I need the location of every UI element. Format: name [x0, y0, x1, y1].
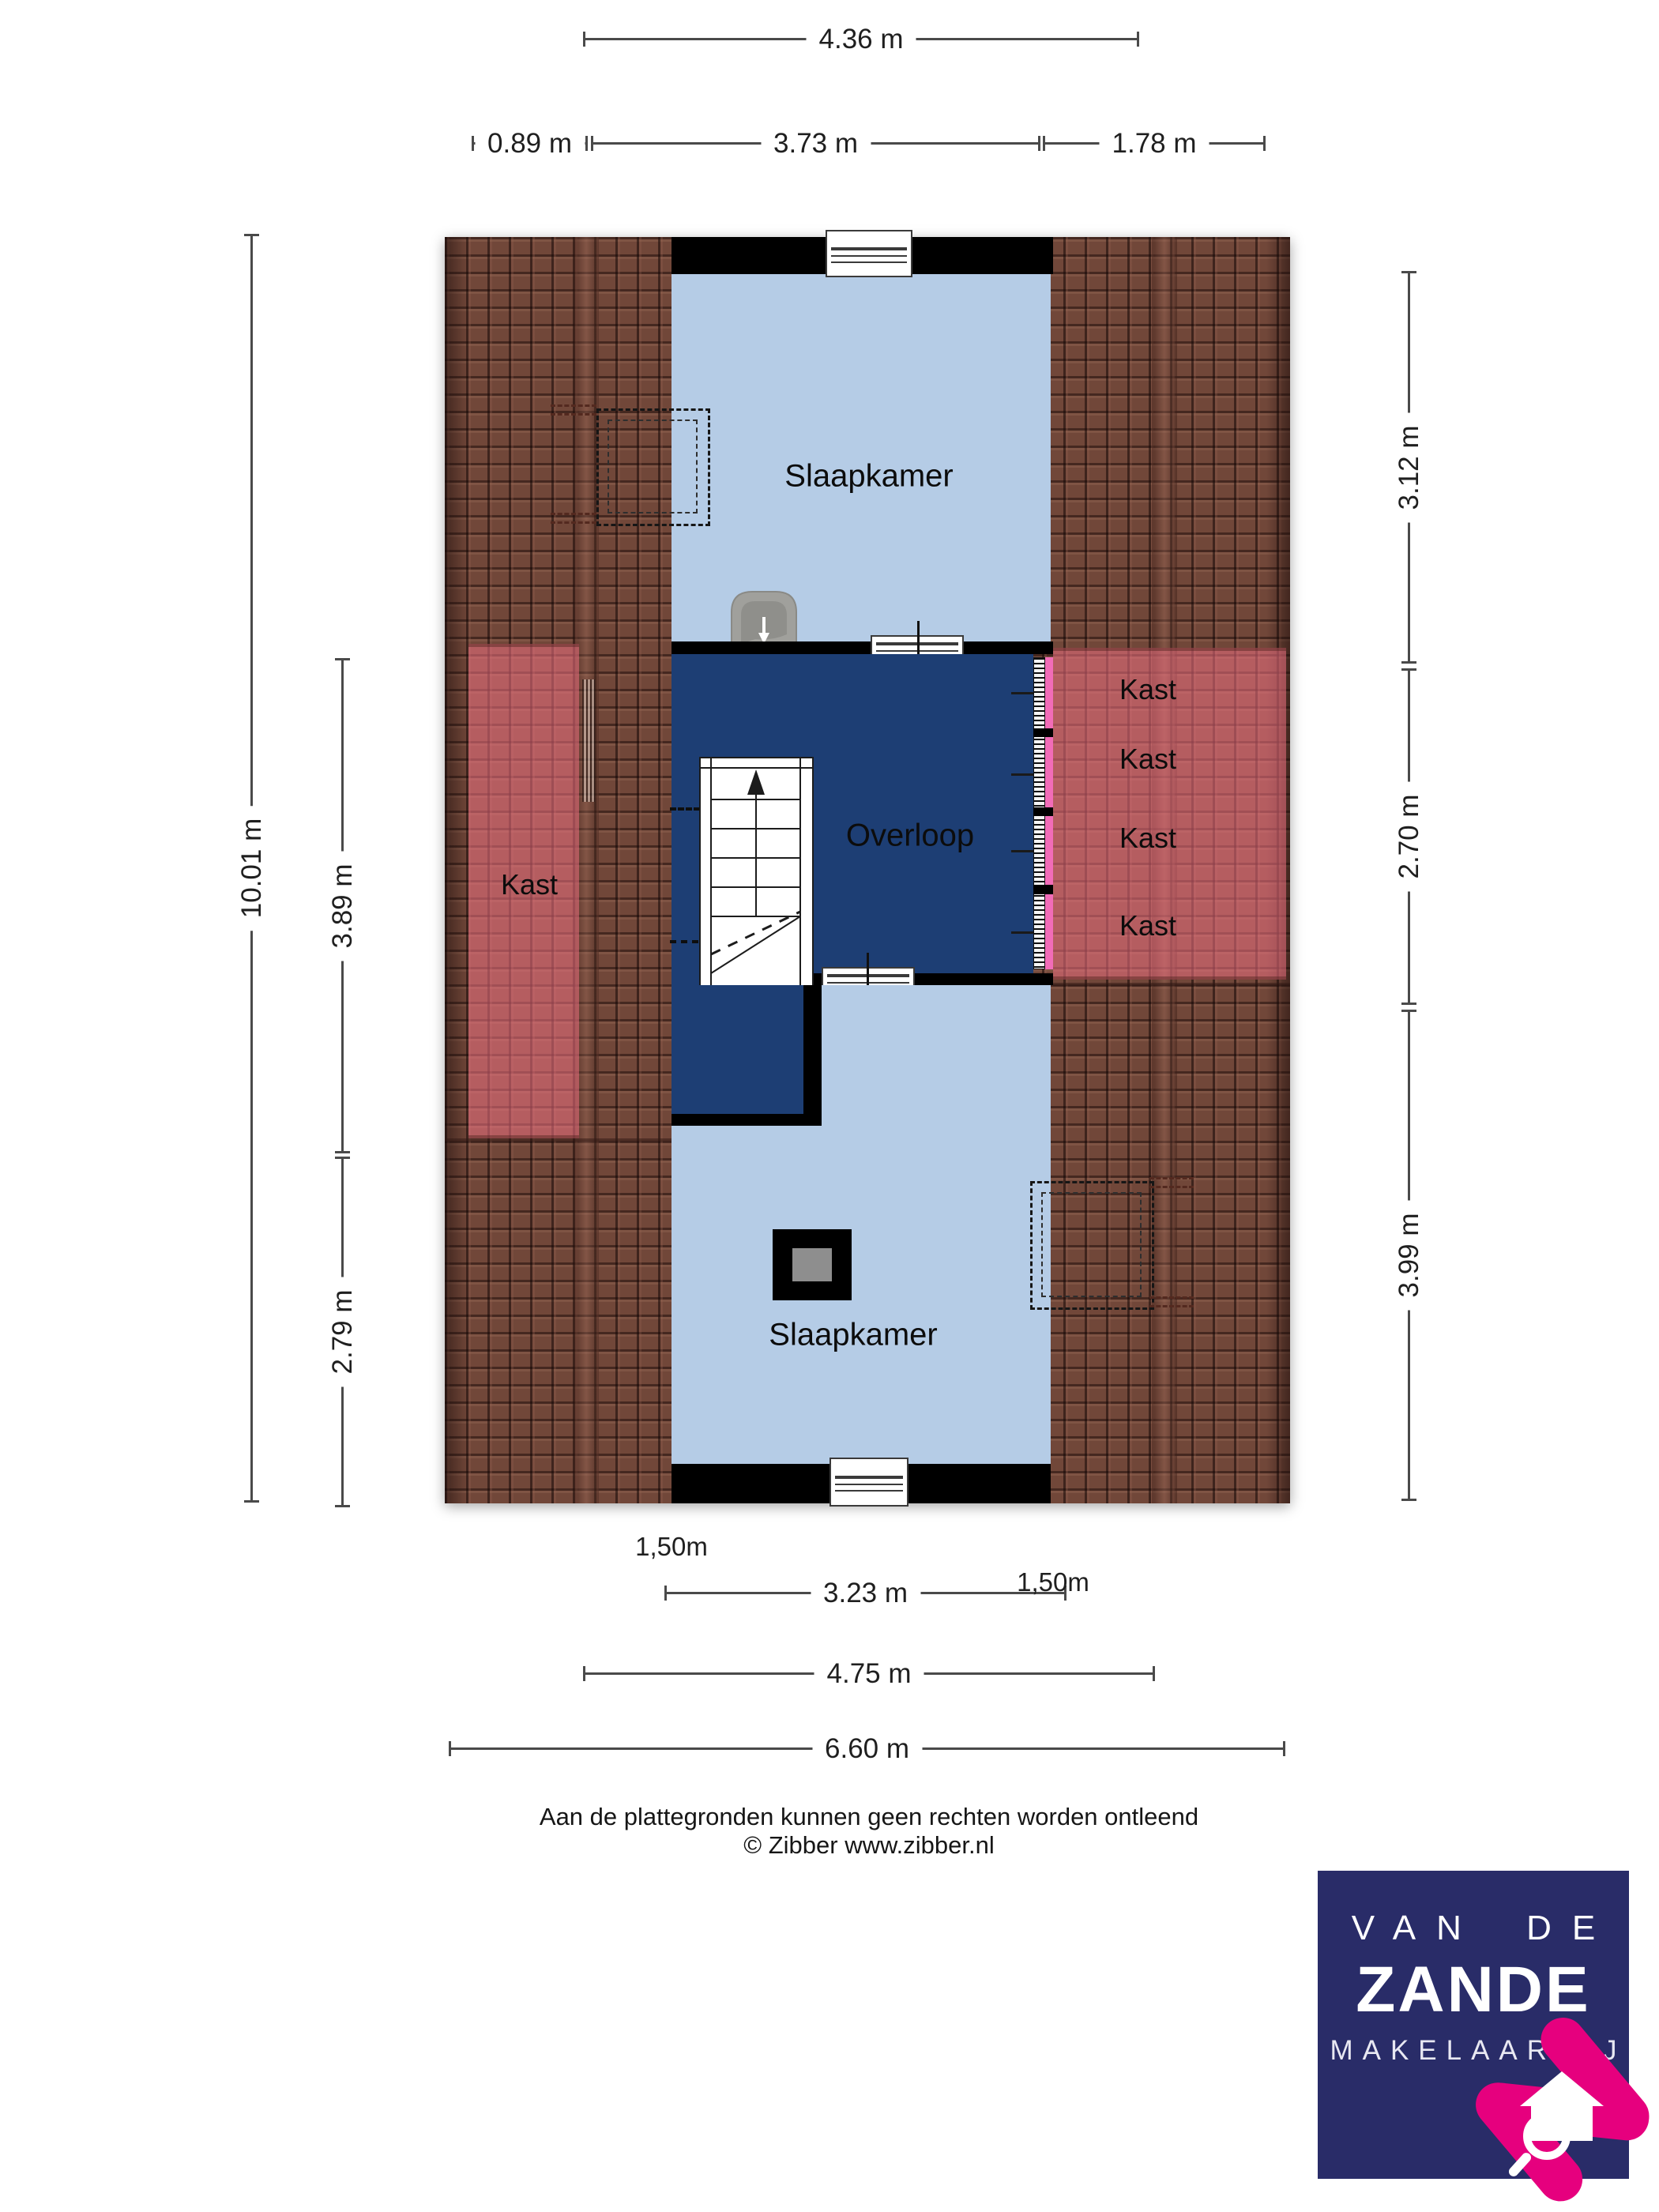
- dim-label: 3.73 m: [761, 128, 871, 160]
- room-label-landing: Overloop: [846, 818, 974, 854]
- closet-stub-3: [1033, 885, 1053, 894]
- room-label-closet-right-1: Kast: [1119, 673, 1176, 706]
- dim-top-width: 4.36 m: [585, 38, 1138, 40]
- room-label-bedroom-top: Slaapkamer: [784, 459, 953, 495]
- closet-door-tick-1: [1011, 692, 1033, 694]
- roof-window-ext-bottom: [551, 513, 596, 524]
- closet-door-tick-3: [1011, 850, 1033, 852]
- window-glass: [835, 1476, 903, 1492]
- wall-bedroomtop-landing: [671, 641, 1053, 654]
- logo-line-van-de: VAN DE: [1331, 1909, 1616, 1948]
- copyright-text: © Zibber www.zibber.nl: [743, 1831, 994, 1860]
- dim-left-mid: 3.89 m: [341, 660, 344, 1152]
- chimney-flue: [792, 1248, 832, 1281]
- bedroom-top-wall-right: [912, 237, 1053, 274]
- roof-window-ext-bottom: [1149, 1296, 1194, 1307]
- dim-label: 2.79 m: [327, 1277, 359, 1387]
- room-label-closet-right-4: Kast: [1119, 909, 1176, 942]
- bedroom-top-wall-left: [671, 237, 826, 274]
- sink-icon: [725, 589, 803, 644]
- window-glass: [831, 247, 907, 263]
- stairs-icon: [699, 757, 814, 1021]
- dim-label: 4.75 m: [814, 1658, 924, 1690]
- window-top: [826, 230, 912, 277]
- dim-label: 6.60 m: [812, 1733, 922, 1765]
- headroom-label-right: 1,50m: [1017, 1567, 1089, 1597]
- landing-alcove-over: [671, 985, 803, 1114]
- dim-right-lower: 3.99 m: [1408, 1011, 1410, 1499]
- dim-label: 10.01 m: [236, 806, 268, 931]
- closet-left-door: [582, 679, 595, 802]
- logo-house-icon: [1471, 2016, 1653, 2206]
- roof-seam-right-bottom: [1053, 983, 1290, 986]
- dim-top-mid: 3.73 m: [592, 142, 1039, 145]
- room-label-bedroom-bottom: Slaapkamer: [769, 1318, 937, 1353]
- dim-top-left: 0.89 m: [473, 142, 586, 145]
- headroom-dash-2: [670, 940, 698, 943]
- dim-label: 3.99 m: [1394, 1201, 1425, 1311]
- window-bottom: [829, 1458, 908, 1507]
- alcove-wall-vertical-over: [803, 985, 822, 1126]
- dim-left-lower: 2.79 m: [341, 1158, 344, 1506]
- roof-window-ext-top: [1149, 1177, 1194, 1188]
- dim-bottom-outer: 6.60 m: [450, 1747, 1284, 1750]
- headroom-dash-1: [670, 807, 700, 811]
- dim-label: 4.36 m: [807, 24, 916, 55]
- room-label-closet-right-3: Kast: [1119, 822, 1176, 855]
- roof-left-edge-shade: [445, 237, 468, 1503]
- dim-label: 2.70 m: [1394, 782, 1425, 892]
- dim-label: 3.12 m: [1394, 412, 1425, 522]
- roof-seam-left-bottom: [445, 1138, 671, 1142]
- bedroom-top-floor: [671, 274, 1051, 641]
- roof-window-inner: [1041, 1192, 1142, 1297]
- dim-right-mid: 2.70 m: [1408, 670, 1410, 1003]
- dim-bottom-inner: 3.23 m: [666, 1592, 1065, 1594]
- dim-label: 3.89 m: [327, 851, 359, 961]
- closet-door-tick-2: [1011, 773, 1033, 776]
- headroom-label-left: 1,50m: [635, 1532, 708, 1562]
- roof-window-ext-top: [551, 404, 596, 416]
- room-label-closet-left: Kast: [501, 868, 558, 901]
- dim-bottom-mid: 4.75 m: [585, 1672, 1153, 1675]
- closet-stub-1: [1033, 728, 1053, 737]
- dim-top-right: 1.78 m: [1044, 142, 1264, 145]
- dim-label: 0.89 m: [475, 128, 585, 160]
- alcove-wall-horizontal-over: [671, 1114, 822, 1126]
- closet-door-tick-4: [1011, 931, 1033, 934]
- disclaimer-text: Aan de plattegronden kunnen geen rechten…: [540, 1803, 1198, 1831]
- roof-window-inner: [608, 419, 698, 513]
- dim-right-upper: 3.12 m: [1408, 273, 1410, 662]
- dim-left-total: 10.01 m: [250, 235, 253, 1501]
- room-label-closet-right-2: Kast: [1119, 743, 1176, 776]
- dim-label: 3.23 m: [811, 1578, 920, 1609]
- dim-label: 1.78 m: [1100, 128, 1209, 160]
- closet-stub-2: [1033, 807, 1053, 816]
- floorplan-page: Slaapkamer Overloop Slaapkamer Kast Kast…: [0, 0, 1659, 2212]
